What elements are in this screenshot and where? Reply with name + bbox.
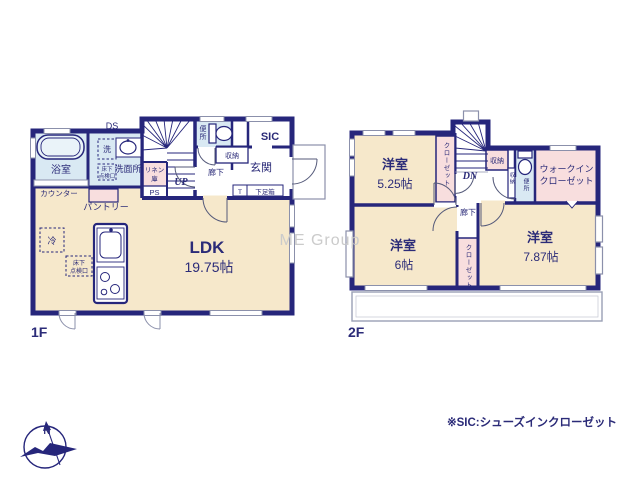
ldk-size-label: 19.75帖 [184,259,233,275]
door-opening [481,201,505,206]
ldk-label: LDK [190,238,226,257]
sic-label: SIC [261,131,279,143]
bedroom3-label: 洋室 [527,230,553,245]
pantry-label: パントリー [83,202,128,212]
floor1-plan: DS 浴室 洗 洗面所 床下 点検口 リネン 庫 PS UP 便所 収納 廊下 … [31,117,326,341]
ldk-floor [33,187,292,313]
floor2-label: 2F [348,324,365,340]
ps-label: PS [149,188,159,197]
toilet-icon [518,151,532,175]
hallway1f-label: 廊下 [208,167,224,177]
ds-label: DS [106,121,119,131]
underfloor-label: 点検口 [70,267,88,275]
fridge-label: 冷 [47,235,56,246]
entrance-porch [293,145,325,199]
floor2-plan: 洋室 5.25帖 クローゼット DN 収納 収納 便所 ウォークイン クローゼッ… [346,111,603,340]
underfloor-label: 床下 [73,259,85,267]
compass-north-label: N [43,426,50,437]
counter-strip [34,180,88,186]
bedroom2-label: 洋室 [390,238,416,253]
underfloor-label: 床下 [101,165,113,173]
underfloor-label: 点検口 [99,172,116,180]
linen-label: リネン [145,166,165,174]
compass-icon: N [20,421,77,468]
door-opening [434,203,456,208]
footnote: ※SIC:シューズインクローゼット [447,415,617,429]
bath-label: 浴室 [51,163,71,176]
balcony [352,292,602,321]
dn-label: DN [462,171,478,182]
bathtub-icon [37,135,84,159]
bedroom2-size-label: 6帖 [395,257,414,272]
shoebox-label: 下足箱 [255,187,275,196]
watermark: ME Group [280,232,361,249]
floor1-label: 1F [31,324,48,340]
bedroom1-size-label: 5.25帖 [377,176,412,191]
toilet1-label: 便所 [199,124,207,141]
bedroom3-floor [478,203,598,288]
door-opening [203,196,227,201]
toilet2-label: 便所 [522,177,529,192]
pantry-closet [89,189,118,202]
washroom-label: 洗面所 [114,163,141,174]
storage2f-small-label: 収納 [509,172,516,186]
door-arc [198,148,215,165]
washbasin-icon [116,138,141,157]
floorplan-page: DS 浴室 洗 洗面所 床下 点検口 リネン 庫 PS UP 便所 収納 廊下 … [0,0,640,480]
counter-label: カウンター [40,189,78,198]
up-label: UP [174,177,188,188]
bedroom1-label: 洋室 [382,157,408,172]
wic-label: ウォークイン [539,164,593,174]
storage1f-label: 収納 [225,151,239,160]
stairs-down-icon [455,122,488,172]
wic-label: クローゼット [539,175,593,186]
kitchen-island [94,224,127,303]
t-label: T [238,189,242,196]
storage2f-label: 収納 [490,156,504,165]
laundry-label: 洗 [103,144,111,154]
entrance-label: 玄関 [250,160,272,174]
linen-label: 庫 [151,174,158,183]
bedroom3-size-label: 7.87帖 [523,249,558,264]
floorplan-drawing: DS 浴室 洗 洗面所 床下 点検口 リネン 庫 PS UP 便所 収納 廊下 … [0,0,640,480]
hallway2f-label: 廊下 [460,207,476,217]
